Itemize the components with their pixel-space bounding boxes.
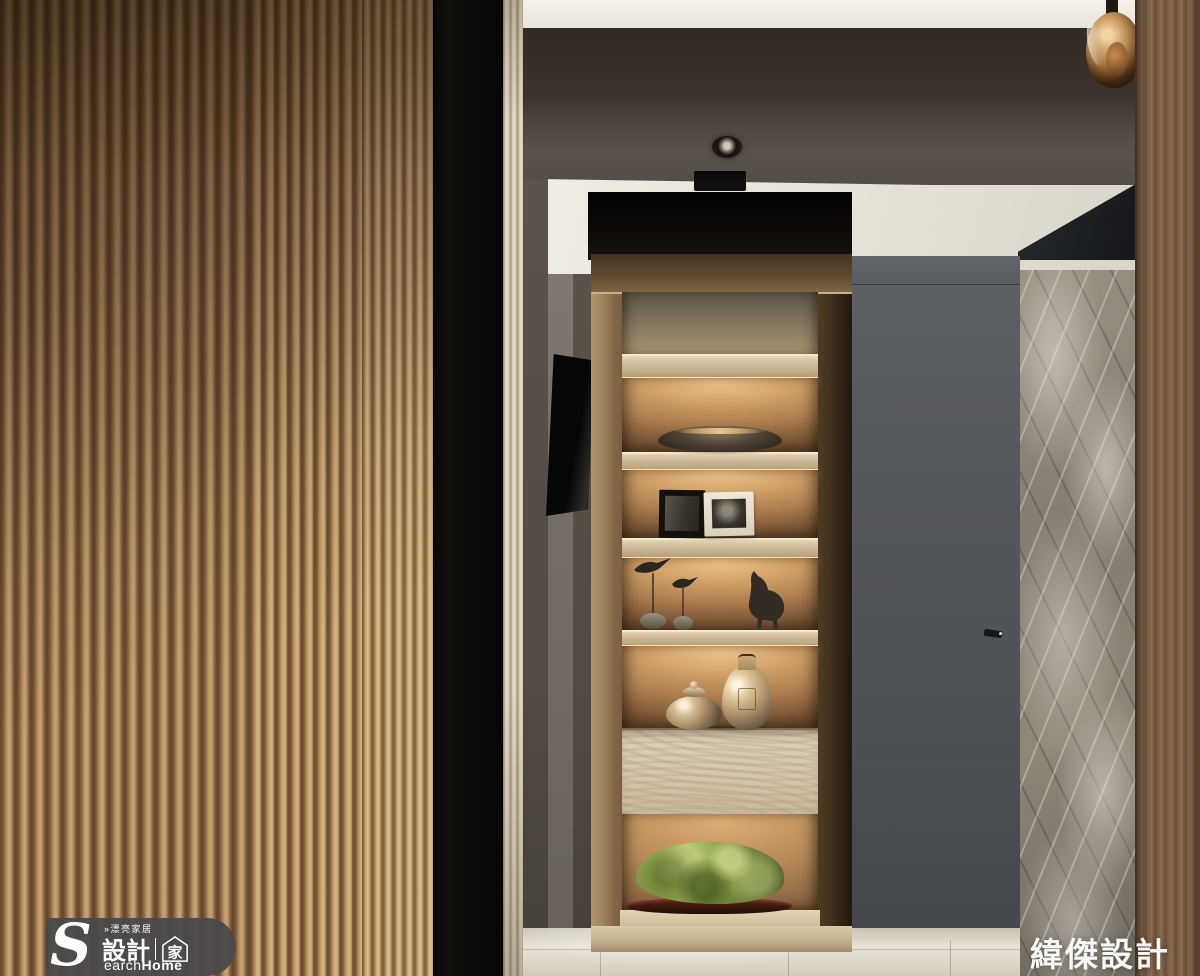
display-shelf-top-rail xyxy=(591,254,852,294)
designer-credit-watermark: 緯傑設計 xyxy=(1030,928,1200,972)
logo-en-bold: Home xyxy=(142,957,183,973)
wood-drawer[interactable] xyxy=(622,728,818,818)
wood-column xyxy=(1135,0,1200,976)
stone-base xyxy=(673,616,693,630)
green-stone-sculpture xyxy=(636,842,784,904)
ceiling-beam xyxy=(523,28,1135,185)
photo-frame-light xyxy=(704,491,755,536)
recessed-downlight xyxy=(712,136,742,158)
searchhome-logo: S »漂亮家居 設計 家 earchHome xyxy=(46,918,236,976)
bird-sculptures xyxy=(628,556,710,636)
shelf-bottom-rail xyxy=(591,926,852,952)
shelf-board xyxy=(622,354,818,378)
shelf-compartment-empty xyxy=(622,292,818,354)
ceiling-vent xyxy=(694,171,746,191)
ceiling-top-strip xyxy=(523,0,1135,30)
logo-en-rest: earch xyxy=(104,957,142,973)
bird-one xyxy=(634,558,671,573)
logo-brand-en: earchHome xyxy=(104,957,182,973)
black-divider-panel xyxy=(433,0,503,976)
decor-bowl xyxy=(658,426,782,452)
shelf-ceiling-niche xyxy=(588,192,852,260)
stone-base xyxy=(640,613,666,629)
shelf-board xyxy=(622,538,818,558)
gray-door[interactable] xyxy=(850,256,1020,936)
wall-tv xyxy=(546,354,594,516)
photo-frame-dark xyxy=(659,490,706,539)
interior-photo: S »漂亮家居 設計 家 earchHome 緯傑設計 xyxy=(0,0,1200,976)
wood-slat-wall-mid xyxy=(250,0,362,976)
bird-two xyxy=(672,577,698,588)
marble-wall xyxy=(1020,270,1135,976)
horse-figurine xyxy=(740,570,792,632)
logo-initial-s: S xyxy=(50,912,92,976)
metallic-vase-round xyxy=(666,696,722,730)
gray-door-top-rail xyxy=(850,256,1020,285)
pendant-glass-globe xyxy=(1086,12,1142,88)
fluted-trim-shade xyxy=(503,0,523,976)
wood-slat-wall xyxy=(0,0,250,976)
floor-seam xyxy=(950,940,951,976)
wood-slat-wall-edge xyxy=(362,0,433,976)
